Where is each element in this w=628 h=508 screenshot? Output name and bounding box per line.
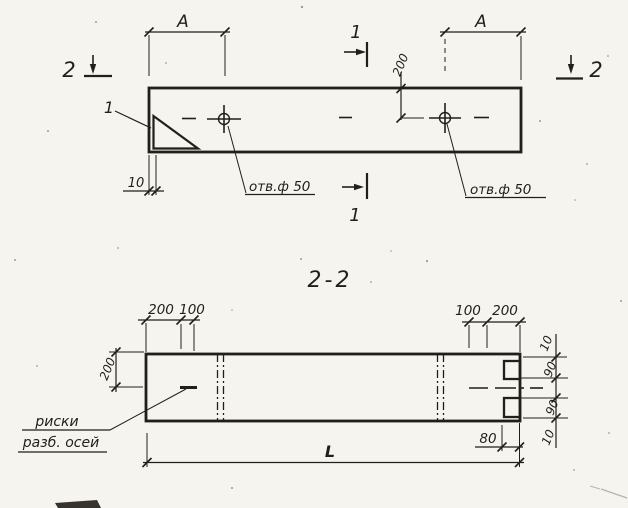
section1-top-label: 1 (350, 22, 361, 43)
axis-note-line1: риски (34, 414, 78, 430)
hole-right (429, 103, 461, 133)
dim-a-left: A (145, 12, 231, 76)
scan-artifacts (14, 6, 627, 508)
ink-smudge (55, 500, 101, 508)
dim-200-axis-offset: 200 (97, 348, 144, 393)
drawing-sheet: A A 200 1 1 2 (0, 0, 628, 508)
beam-technical-drawing: A A 200 1 1 2 (0, 0, 628, 508)
dims-top-left: 200 100 (138, 302, 205, 352)
hidden-lines-right (438, 354, 444, 421)
dims-right-edge: 10 90 90 10 (521, 333, 568, 448)
paper-crease-mark (601, 489, 627, 498)
dim-a-right-label: A (474, 12, 487, 32)
section1-bottom-label: 1 (349, 205, 360, 226)
hole-left-label: отв.ф 50 (249, 179, 310, 195)
section2-right-label: 2 (589, 58, 602, 82)
paper-speckles (14, 6, 622, 489)
section-mark-2-left: 2 (62, 55, 112, 82)
beam-outline-plan (149, 88, 521, 152)
corner-detail-callout: 1 (104, 98, 151, 128)
dim-200-label: 200 (390, 51, 412, 78)
paper-crease-mark-2 (590, 486, 600, 489)
hole-right-callout: отв.ф 50 (447, 124, 546, 198)
dim-tl-200: 200 (148, 302, 174, 318)
dim-edge-10-top: 10 (537, 333, 556, 353)
section-mark-1-bottom: 1 (342, 173, 367, 226)
dim-a-right: A (440, 12, 526, 80)
dim-10-label: 10 (128, 176, 145, 191)
dim-tr-200: 200 (492, 303, 518, 319)
corner-embed-triangle (154, 116, 199, 149)
dim-10-wall: 10 (123, 155, 164, 196)
corner-callout-label: 1 (104, 98, 114, 117)
section-mark-2-right: 2 (556, 55, 603, 82)
dim-length-L: L (143, 423, 525, 467)
hole-left (207, 105, 241, 133)
plan-view: A A 200 1 1 2 (62, 12, 602, 226)
dim-tl-100: 100 (179, 302, 205, 318)
section-mark-1-top: 1 (344, 22, 367, 67)
dim-200-axis-label: 200 (97, 355, 119, 382)
section2-left-label: 2 (62, 58, 75, 82)
beam-outline-section (146, 354, 520, 421)
hole-right-label: отв.ф 50 (470, 182, 531, 198)
end-grooves (504, 361, 520, 417)
section-title: 2-2 (308, 268, 353, 293)
section-view-2-2: 2-2 200 (18, 268, 568, 467)
dim-length-label: L (325, 442, 335, 461)
axis-note-line2: разб. осей (22, 435, 99, 451)
hole-left-callout: отв.ф 50 (228, 126, 315, 195)
dims-top-right: 100 200 (455, 303, 526, 352)
dim-tr-100: 100 (455, 303, 481, 319)
dim-80-label: 80 (479, 431, 496, 447)
dim-a-left-label: A (176, 12, 189, 32)
dim-80: 80 (475, 425, 524, 452)
dim-edge-10-bottom: 10 (539, 427, 558, 447)
hidden-lines-left (218, 354, 224, 421)
